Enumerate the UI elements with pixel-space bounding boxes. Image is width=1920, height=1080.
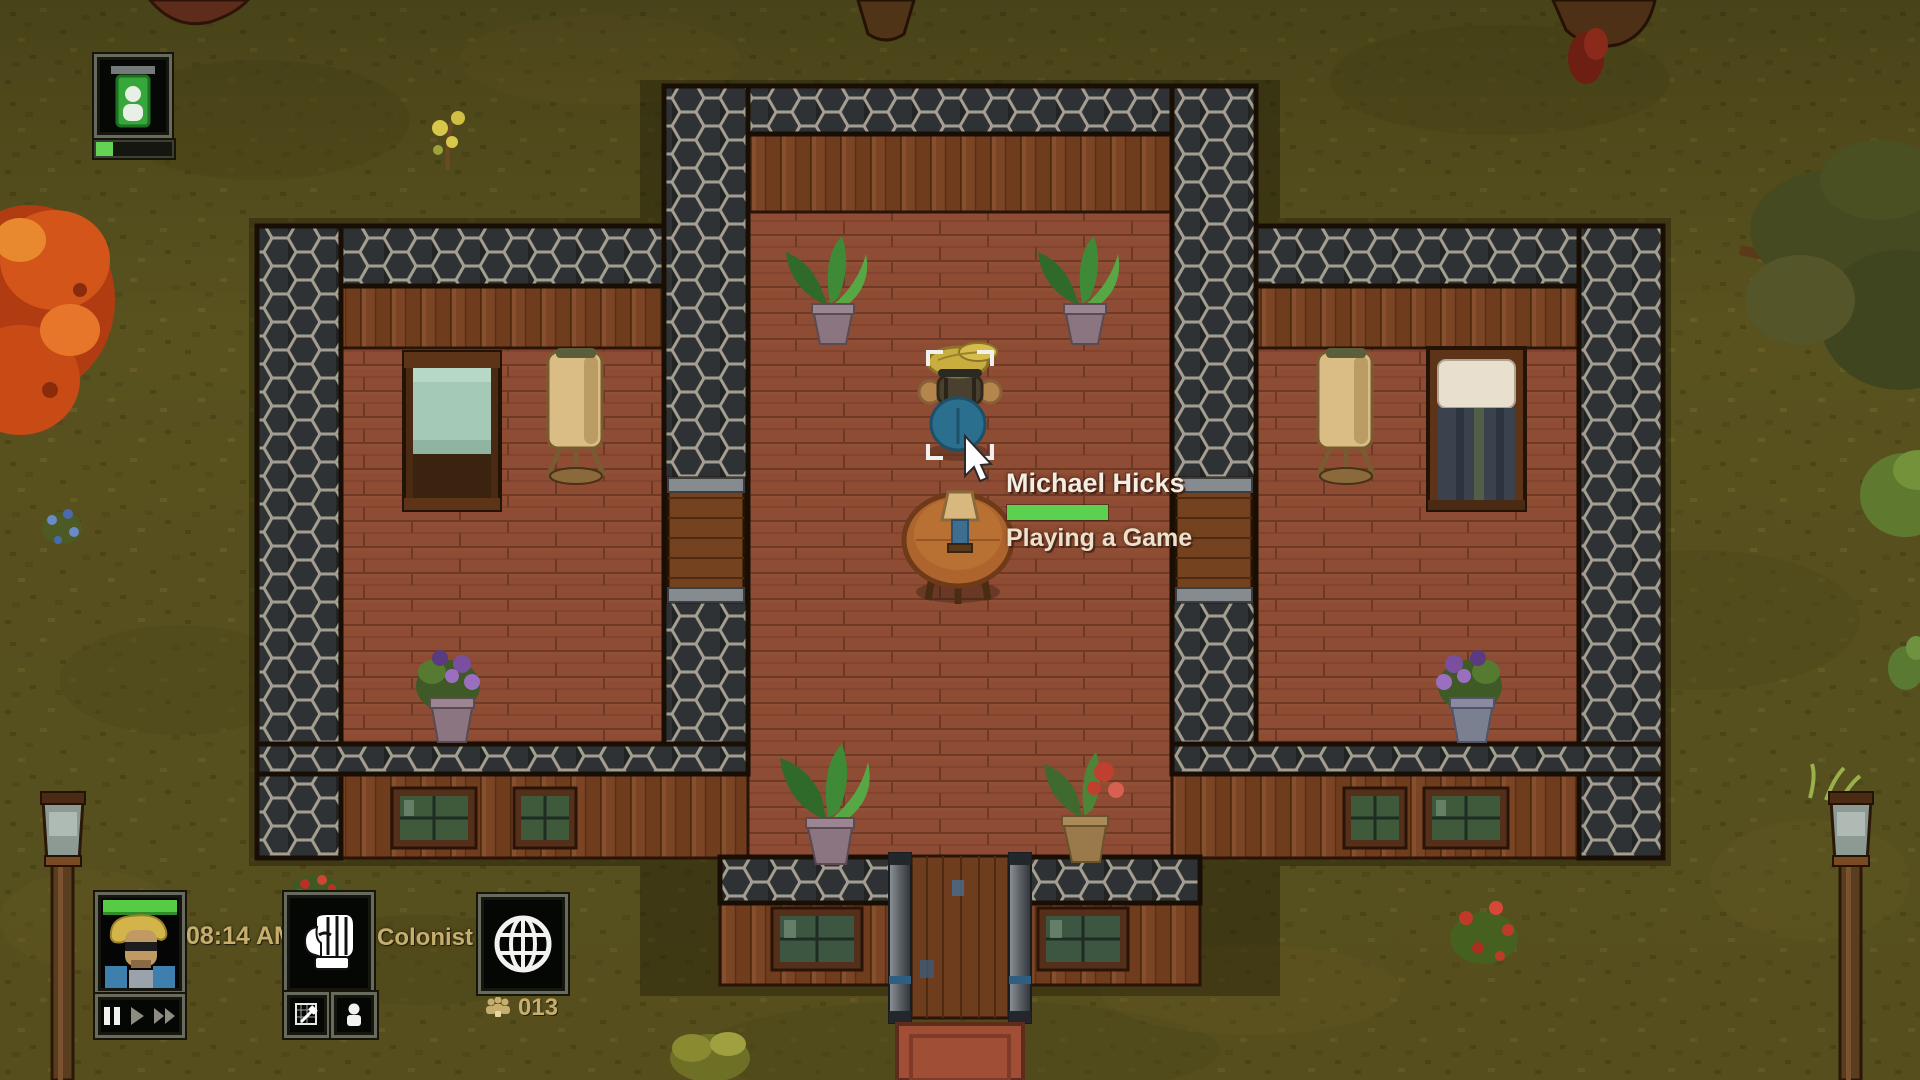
- mini-colonist-meter: [94, 140, 174, 158]
- world-map-button[interactable]: [478, 894, 568, 994]
- colonist-name-label: Michael Hicks: [1006, 468, 1185, 499]
- person-icon: [342, 1002, 366, 1028]
- colonist-portrait: [101, 898, 179, 988]
- mini-colonist-button[interactable]: [94, 54, 172, 138]
- colonist-list-button[interactable]: [331, 992, 377, 1038]
- colonist-activity-label: Playing a Game: [1006, 524, 1192, 553]
- mini-colonist-icon: [102, 62, 164, 130]
- mini-colonist-meter-fill: [96, 142, 113, 156]
- doormat: [897, 1024, 1023, 1080]
- population-count: 013: [518, 994, 558, 1022]
- pause-button[interactable]: [102, 1005, 122, 1027]
- activity-progress-fill: [1007, 505, 1108, 520]
- blueprint-hammer-icon: [294, 1002, 320, 1028]
- grass-bush: [670, 1032, 750, 1080]
- left-room-floor: [341, 348, 664, 744]
- globe-icon: [492, 913, 554, 975]
- selection-mode-label: Colonist: [377, 924, 473, 952]
- wall-paneling: [1256, 286, 1579, 348]
- interior-door-left[interactable]: [668, 478, 744, 602]
- population-row: 013: [483, 994, 558, 1022]
- right-room-floor: [1256, 348, 1579, 744]
- clock-time: 08:14 AM: [186, 922, 295, 951]
- architect-button[interactable]: [284, 992, 330, 1038]
- hand-tool-button[interactable]: [284, 892, 374, 994]
- headband: [938, 369, 982, 377]
- population-icon: [483, 997, 513, 1019]
- bed-right-room[interactable]: [1428, 348, 1525, 510]
- activity-progress-bar: [1007, 505, 1108, 520]
- bed-left-room[interactable]: [404, 352, 500, 510]
- wall-paneling: [748, 134, 1172, 212]
- fast-forward-button[interactable]: [152, 1005, 178, 1027]
- wall-paneling: [341, 286, 664, 348]
- game-viewport: Michael Hicks Playing a Game 08:14 AM: [0, 0, 1920, 1080]
- play-button[interactable]: [128, 1005, 146, 1027]
- colonist-portrait-button[interactable]: [95, 892, 185, 994]
- speed-controls: [95, 994, 185, 1038]
- hand-icon: [301, 913, 357, 973]
- entrance-door[interactable]: [889, 853, 1031, 1023]
